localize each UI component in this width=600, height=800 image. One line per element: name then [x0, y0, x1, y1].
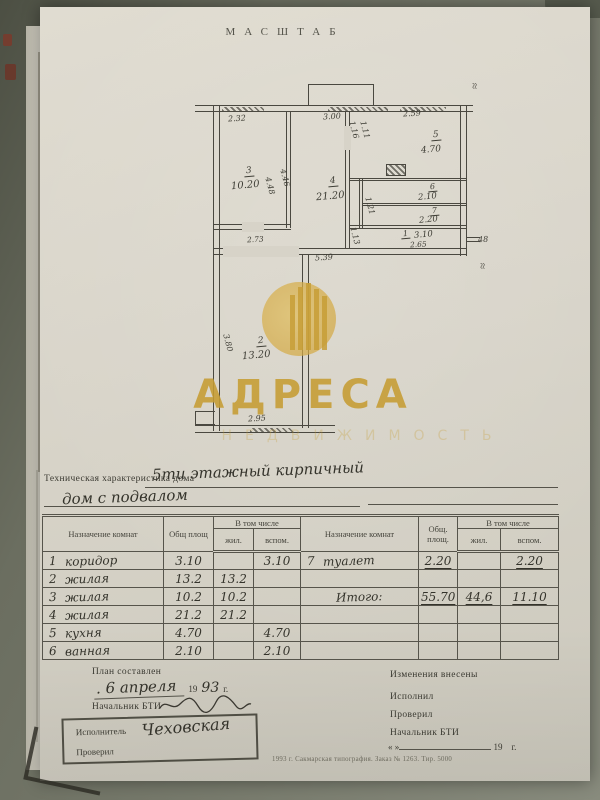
plan-made-label: План составлен	[92, 667, 161, 677]
room-area: 10.20	[231, 179, 260, 192]
dim-label: 2.65	[410, 240, 427, 250]
grand-living-area: 44,6	[458, 588, 501, 606]
room-area: 2.20	[419, 214, 439, 226]
door-opening	[242, 222, 264, 232]
dim-label: 4.48	[263, 176, 276, 196]
room-area: 21.20	[316, 190, 345, 203]
living-area	[214, 624, 254, 642]
photo-background: МАСШТАБ ≈ ≈ 2.32 3.00 2.59 1.16 1.	[0, 0, 600, 800]
executor-label: Исполнитель	[76, 726, 127, 737]
bti-chief-label: Начальник БТИ	[92, 702, 161, 712]
window	[328, 107, 388, 111]
table-row: 1коридор 3.10 3.10 7туалет 2.20 2.20	[43, 552, 559, 570]
dim-label: 5.39	[315, 253, 333, 263]
aux-area	[254, 570, 301, 588]
room-no: 7	[307, 553, 315, 567]
dim-label: 1.21	[363, 196, 376, 216]
table-row: 5кухня 4.70 4.70	[43, 624, 559, 642]
room-no: 4	[49, 607, 57, 621]
wall-step	[195, 411, 215, 425]
bti-chief-label: Начальник БТИ	[390, 728, 459, 738]
scale-heading: МАСШТАБ	[205, 26, 365, 38]
ruled-line	[145, 487, 558, 488]
dim-label: 3.80	[221, 333, 234, 353]
living-area: 10.2	[214, 588, 254, 606]
aux-area: 3.10	[254, 552, 301, 570]
table-row: 3жилая 10.2 10.2 Итого: 55.70 44,6 11.10	[43, 588, 559, 606]
checked-label: Проверил	[390, 710, 433, 720]
living-area	[214, 552, 254, 570]
room-number: 4	[328, 176, 339, 188]
aux-area: 4.70	[254, 624, 301, 642]
aux-area: 2.10	[254, 642, 301, 660]
executor-name-handwritten: Чеховская	[141, 714, 231, 740]
col-header-name: Назначение комнат	[43, 516, 164, 552]
room-name: жилая	[64, 571, 109, 587]
wall-bath-toilet	[362, 203, 467, 206]
total-area: 4.70	[164, 624, 214, 642]
window	[222, 107, 264, 111]
room-number: 3	[244, 166, 255, 178]
grand-aux-area: 11.10	[501, 588, 559, 606]
wall-bath-top	[350, 178, 467, 181]
aux-area	[254, 588, 301, 606]
performed-label: Исполнил	[390, 692, 434, 702]
door-opening	[223, 246, 299, 257]
table-row: 6ванная 2.10 2.10	[43, 642, 559, 660]
total-area: 21.2	[164, 606, 214, 624]
room-no: 6	[49, 643, 57, 657]
dim-label: 2.32	[228, 114, 246, 124]
rooms-table: Назначение комнат Общ площ В том числе Н…	[42, 514, 559, 660]
col-header-including: В том числе	[214, 516, 301, 529]
room-area: 13.20	[242, 349, 271, 362]
total-label: Итого:	[336, 589, 383, 605]
living-area	[458, 552, 501, 570]
room-name: кухня	[64, 625, 101, 640]
aux-area: 2.20	[501, 552, 559, 570]
grand-total-area: 55.70	[419, 588, 458, 606]
col-header-aux2: вспом.	[501, 529, 559, 552]
year-suffix: г.	[512, 742, 517, 752]
total-area: 3.10	[164, 552, 214, 570]
year-prefix: 19	[494, 742, 503, 752]
red-binder-mark	[3, 34, 12, 46]
col-header-total: Общ площ	[164, 516, 214, 552]
total-area: 10.2	[164, 588, 214, 606]
table-row: 2жилая 13.2 13.2	[43, 570, 559, 588]
blank-fill-line	[399, 749, 491, 750]
room-name: коридор	[64, 553, 117, 569]
wall-room2-right	[302, 255, 309, 428]
wall-bath-left	[359, 178, 363, 229]
dim-label: 3.00	[323, 112, 341, 122]
balcony-outline	[308, 84, 374, 105]
dim-label: 2.73	[247, 235, 264, 245]
vent-shaft	[386, 164, 406, 176]
room-no: 2	[49, 571, 57, 585]
room-no: 5	[49, 625, 57, 639]
room-name: туалет	[322, 553, 374, 569]
room-no: 1	[49, 553, 57, 567]
room-no: 3	[49, 589, 57, 603]
total-area: 13.2	[164, 570, 214, 588]
wall-break-mark: ≈	[468, 83, 480, 89]
col-header-name2: Назначение комнат	[301, 516, 419, 552]
total-area: 2.20	[419, 552, 458, 570]
living-area	[214, 642, 254, 660]
room-name: ванная	[64, 643, 110, 659]
col-header-total2: Общ. площ.	[419, 516, 458, 552]
year-prefix: 19	[188, 684, 197, 694]
quote-marks: « »	[388, 742, 399, 752]
living-area: 21.2	[214, 606, 254, 624]
col-header-living2: жил.	[458, 529, 501, 552]
window	[250, 428, 294, 432]
dim-label: 2.95	[248, 414, 266, 424]
room-number: 5	[431, 130, 442, 142]
dim-label: 2.59	[403, 109, 421, 119]
col-header-living: жил.	[214, 529, 254, 552]
sleeve-edge-line	[36, 470, 38, 742]
room-number: 1	[401, 229, 411, 240]
total-area: 2.10	[164, 642, 214, 660]
room-name: жилая	[64, 607, 109, 623]
changes-made-label: Изменения внесены	[390, 670, 478, 680]
ruled-line	[368, 504, 558, 505]
outer-wall-left	[213, 105, 220, 431]
year-suffix: г.	[223, 684, 228, 694]
red-binder-mark	[5, 64, 16, 80]
floor-plan: ≈ ≈ 2.32 3.00 2.59 1.16 1.11 5 4.70 3 10…	[190, 78, 502, 460]
typography-print-line: 1993 г. Сакмарская типография. Заказ № 1…	[272, 756, 452, 763]
room-number: 2	[256, 336, 267, 348]
sleeve-edge-line	[38, 52, 40, 472]
table-row: 4жилая 21.2 21.2	[43, 606, 559, 624]
dim-label: 48	[478, 235, 489, 245]
room-area: 2.10	[418, 191, 438, 203]
date-blank-line: « » 19 г.	[388, 742, 516, 752]
col-header-including2: В том числе	[458, 516, 559, 529]
room-name: жилая	[64, 589, 109, 605]
wall-break-mark: ≈	[476, 263, 488, 269]
ruled-line	[44, 506, 360, 507]
room-area: 4.70	[421, 144, 442, 156]
col-header-aux: вспом.	[254, 529, 301, 552]
aux-area	[254, 606, 301, 624]
living-area: 13.2	[214, 570, 254, 588]
